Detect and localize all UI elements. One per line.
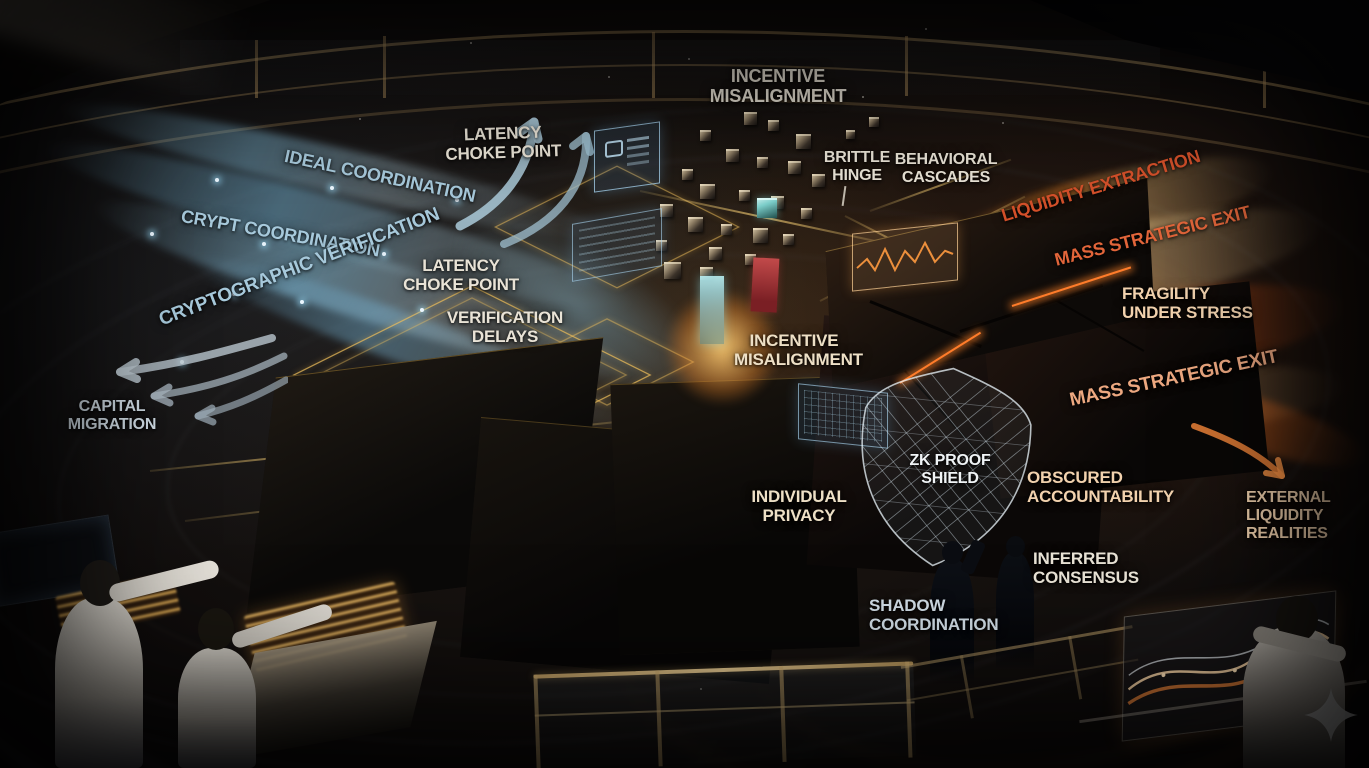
holo-screen-lock — [594, 121, 660, 192]
flow-particle — [382, 252, 386, 256]
person-silhouette-pointing — [178, 648, 256, 768]
flow-particle — [150, 232, 154, 236]
label-verification-delays: VERIFICATION DELAYS — [444, 308, 566, 346]
floating-cube — [801, 208, 812, 219]
flow-particle — [262, 242, 266, 246]
label-zk-proof-shield: ZK PROOF SHIELD — [903, 452, 997, 488]
holo-screen-waveform — [852, 222, 958, 291]
floating-cube — [869, 117, 879, 127]
flow-particle — [300, 300, 304, 304]
label-inferred-consensus: INFERRED CONSENSUS — [1033, 549, 1139, 587]
floating-cube — [688, 217, 703, 232]
floating-cube — [664, 262, 681, 279]
floating-cube — [682, 169, 693, 180]
exit-flow-arrow — [1188, 412, 1298, 492]
floating-cube — [721, 224, 732, 235]
person-silhouette-pointing — [55, 598, 143, 768]
label-individual-privacy: INDIVIDUAL PRIVACY — [744, 487, 854, 525]
floating-cube — [768, 120, 779, 131]
sparkle-icon — [1303, 684, 1359, 746]
floating-cube — [700, 130, 711, 141]
conceptual-diagram-scene: INCENTIVE MISALIGNMENT LATENCY CHOKE POI… — [0, 0, 1369, 768]
floating-cube — [753, 228, 768, 243]
label-brittle-hinge: BRITTLE HINGE — [818, 149, 896, 185]
floating-cube — [788, 161, 801, 174]
label-external-liquidity-realities: EXTERNAL LIQUIDITY REALITIES — [1246, 489, 1331, 543]
railing-glass — [534, 665, 917, 768]
label-incentive-misalignment-top: INCENTIVE MISALIGNMENT — [690, 66, 866, 106]
flow-particle — [330, 186, 334, 190]
label-incentive-misalignment-center: INCENTIVE MISALIGNMENT — [734, 331, 854, 369]
label-latency-choke-point: LATENCY CHOKE POINT — [398, 256, 524, 294]
screen-text-lines — [627, 136, 649, 142]
label-capital-migration: CAPITAL MIGRATION — [58, 398, 166, 434]
foreground-railing — [533, 661, 916, 768]
lock-icon — [605, 140, 623, 159]
floating-cube — [783, 234, 794, 245]
label-shadow-coordination: SHADOW COORDINATION — [869, 596, 999, 634]
screen-hatch — [579, 216, 655, 273]
floating-cube — [846, 130, 855, 139]
flow-particle — [420, 308, 424, 312]
shadow-figure-head — [942, 541, 963, 564]
railing-rail — [907, 659, 1139, 702]
floating-cube — [739, 190, 750, 201]
waveform-trace — [853, 224, 957, 291]
floating-cube — [796, 134, 811, 149]
cyan-slab — [700, 276, 724, 344]
floating-cube-cyan — [757, 198, 777, 218]
brittle-hinge-leader-line — [842, 186, 847, 206]
floating-cube — [744, 112, 757, 125]
flow-particle — [215, 178, 219, 182]
label-fragility-under-stress: FRAGILITY UNDER STRESS — [1122, 284, 1253, 322]
floating-cube — [700, 184, 715, 199]
person-head — [198, 608, 234, 650]
label-behavioral-cascades: BEHAVIORAL CASCADES — [894, 151, 998, 187]
floating-cube — [709, 247, 722, 260]
label-obscured-accountability: OBSCURED ACCOUNTABILITY — [1027, 468, 1174, 506]
label-latency-choke-point-top: LATENCY CHOKE POINT — [437, 122, 568, 165]
shadow-figure-head — [1006, 536, 1025, 557]
floating-cube — [757, 157, 768, 168]
crimson-slab — [751, 257, 780, 312]
floating-cube — [726, 149, 739, 162]
